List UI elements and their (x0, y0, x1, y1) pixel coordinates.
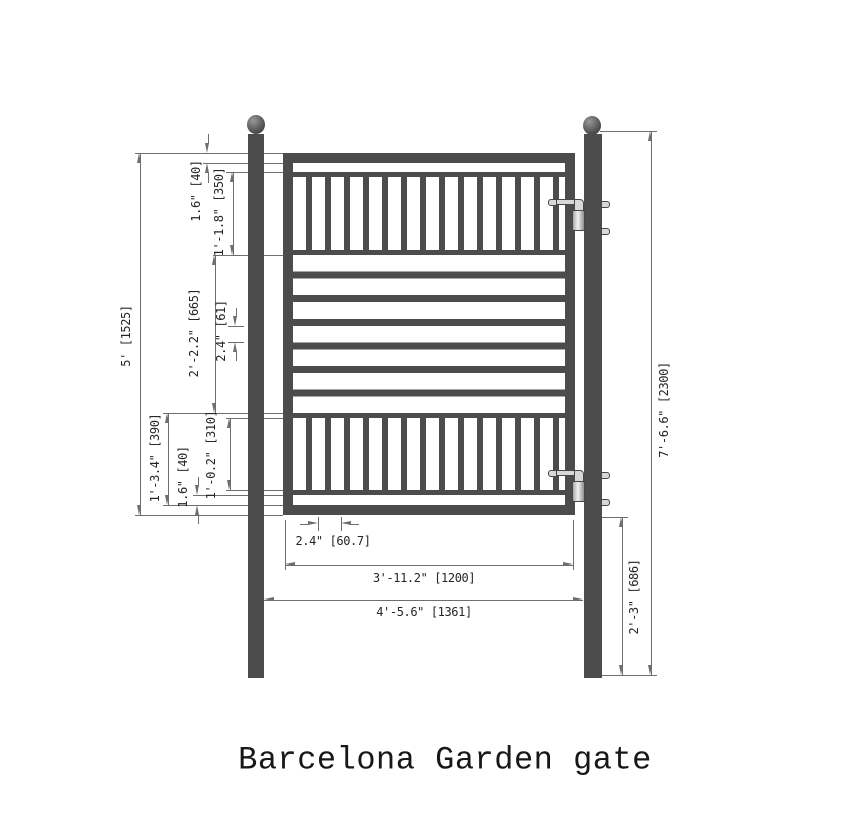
dim-line-bottom-panel (168, 413, 169, 505)
dim-arrow (563, 562, 573, 566)
dim-tick (318, 517, 319, 531)
right-post-finial (583, 116, 601, 135)
right-post (584, 134, 602, 678)
dim-line-gate-height (140, 153, 141, 515)
extension-line (203, 163, 283, 164)
dim-label-gate-width: 3'-11.2" [1200] (373, 571, 475, 585)
dim-arrow (233, 342, 237, 352)
dim-line-top-frame (208, 173, 209, 183)
dim-arrow (619, 665, 623, 675)
picket-panel-top (293, 177, 565, 250)
dim-line-gate-width (285, 565, 573, 566)
dim-arrow (205, 143, 209, 153)
dim-arrow (195, 485, 199, 495)
dim-arrow (227, 480, 231, 490)
dim-label-gate-height: 5' [1525] (119, 305, 133, 366)
dim-label-top-frame: 1.6" [40] (189, 160, 203, 221)
dim-arrow (227, 418, 231, 428)
extension-line (602, 675, 657, 676)
dim-label-post-height: 7'-6.6" [2300] (657, 362, 671, 458)
picket-panel-bottom (293, 418, 565, 490)
dim-label-top-panel: 1'-1.8" [350] (212, 168, 226, 257)
dim-line-top-panel (233, 172, 234, 255)
dim-label-hinge-offset: 2'-3" [686] (627, 559, 641, 634)
dim-arrow (230, 172, 234, 182)
hinge-post-bolt (601, 499, 610, 506)
dim-line-overall-width (264, 600, 583, 601)
dim-arrow (285, 562, 295, 566)
extension-line (163, 413, 283, 414)
dim-arrow (648, 131, 652, 141)
dim-arrow (205, 163, 209, 173)
dim-line-hinge-offset (622, 517, 623, 675)
dim-arrow (573, 597, 583, 601)
left-post-finial (247, 115, 265, 134)
extension-line (573, 520, 574, 570)
dim-label-bottom-pickets: 1'-0.2" [310] (204, 411, 218, 500)
dim-label-picket-gap: 2.4" [60.7] (295, 534, 370, 548)
dim-line-post-height (651, 131, 652, 675)
dim-arrow (165, 413, 169, 423)
dim-line-picket-gap (350, 524, 359, 525)
dim-arrow (165, 495, 169, 505)
dim-arrow (195, 505, 199, 515)
hinge-post-bolt (601, 472, 610, 479)
bottom-gap (293, 495, 565, 505)
dim-label-bottom-panel: 1'-3.4" [390] (148, 414, 162, 503)
dim-arrow (233, 316, 237, 326)
dim-arrow (264, 597, 274, 601)
hinge-barrel (572, 210, 585, 231)
dim-tick (228, 326, 244, 327)
dim-line-mid-bar-gap (236, 352, 237, 361)
left-post (248, 134, 264, 678)
dim-label-mid-section: 2'-2.2" [665] (187, 289, 201, 378)
dim-line-bottom-gap (198, 515, 199, 524)
dim-label-mid-bar-gap: 2.4" [61] (214, 300, 228, 361)
horizontal-bar-section (293, 255, 565, 413)
hinge-post-bolt (601, 228, 610, 235)
dim-arrow (619, 517, 623, 527)
drawing-canvas: 5' [1525] 1.6" [40] 1'-1.8" [350] 2'-2.2… (0, 0, 845, 840)
dim-arrow (648, 665, 652, 675)
dim-arrow (308, 521, 318, 525)
dim-arrow (212, 255, 216, 265)
dim-arrow (137, 153, 141, 163)
gate-panel (283, 153, 575, 515)
hinge-post-bolt (601, 201, 610, 208)
dim-label-bottom-gap: 1.6" [40] (176, 446, 190, 507)
extension-line (602, 517, 628, 518)
top-gap (293, 163, 565, 172)
hinge-barrel (572, 481, 585, 502)
dim-arrow (137, 505, 141, 515)
dim-label-overall-width: 4'-5.6" [1361] (376, 605, 472, 619)
dim-arrow (230, 245, 234, 255)
